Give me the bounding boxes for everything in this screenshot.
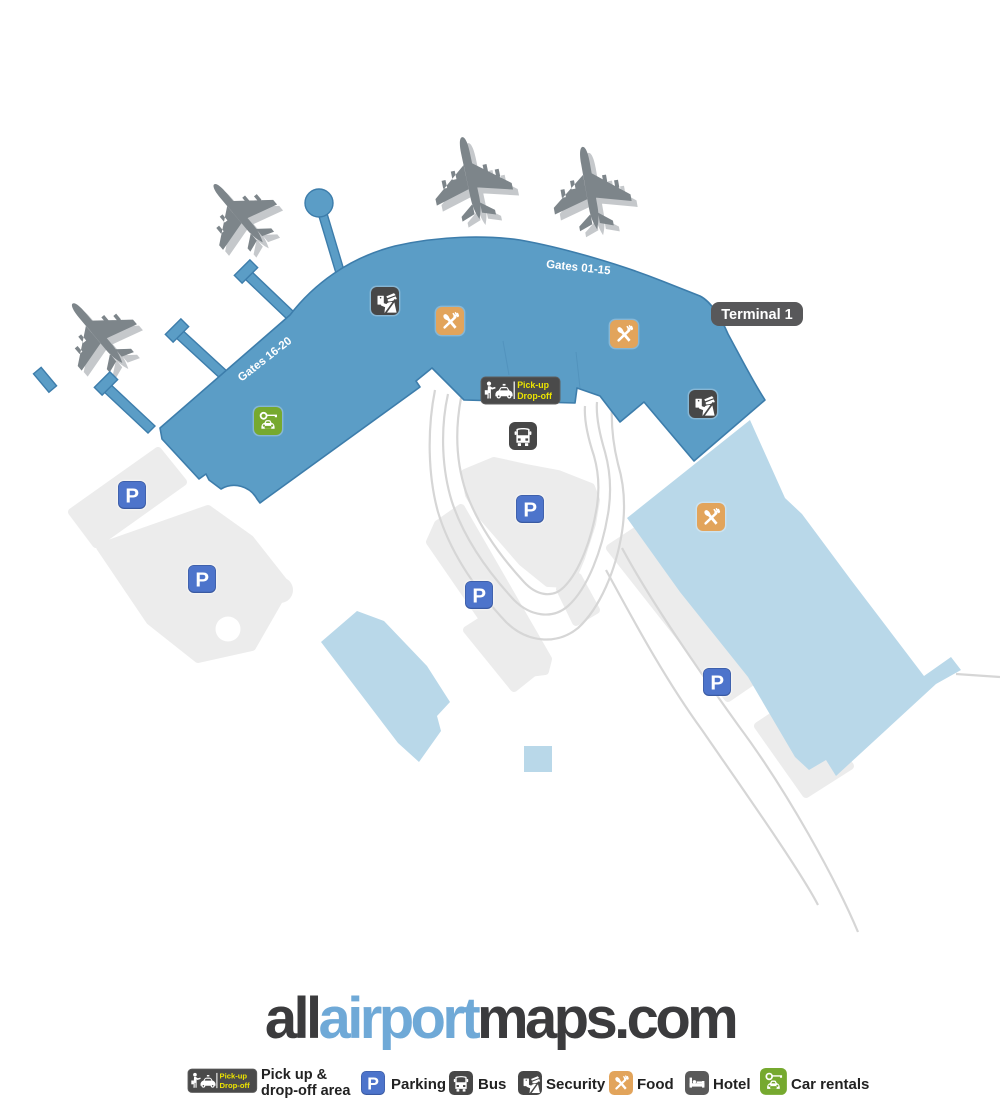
svg-text:Terminal 1: Terminal 1 bbox=[721, 307, 792, 323]
svg-text:Pick up &: Pick up & bbox=[261, 1067, 328, 1083]
svg-text:Car rentals: Car rentals bbox=[791, 1076, 869, 1093]
svg-text:Security: Security bbox=[546, 1076, 606, 1093]
svg-text:Bus: Bus bbox=[478, 1076, 506, 1093]
svg-text:Parking: Parking bbox=[391, 1076, 446, 1093]
svg-text:Food: Food bbox=[637, 1076, 674, 1093]
svg-text:drop-off area: drop-off area bbox=[261, 1083, 351, 1099]
svg-text:Hotel: Hotel bbox=[713, 1076, 751, 1093]
